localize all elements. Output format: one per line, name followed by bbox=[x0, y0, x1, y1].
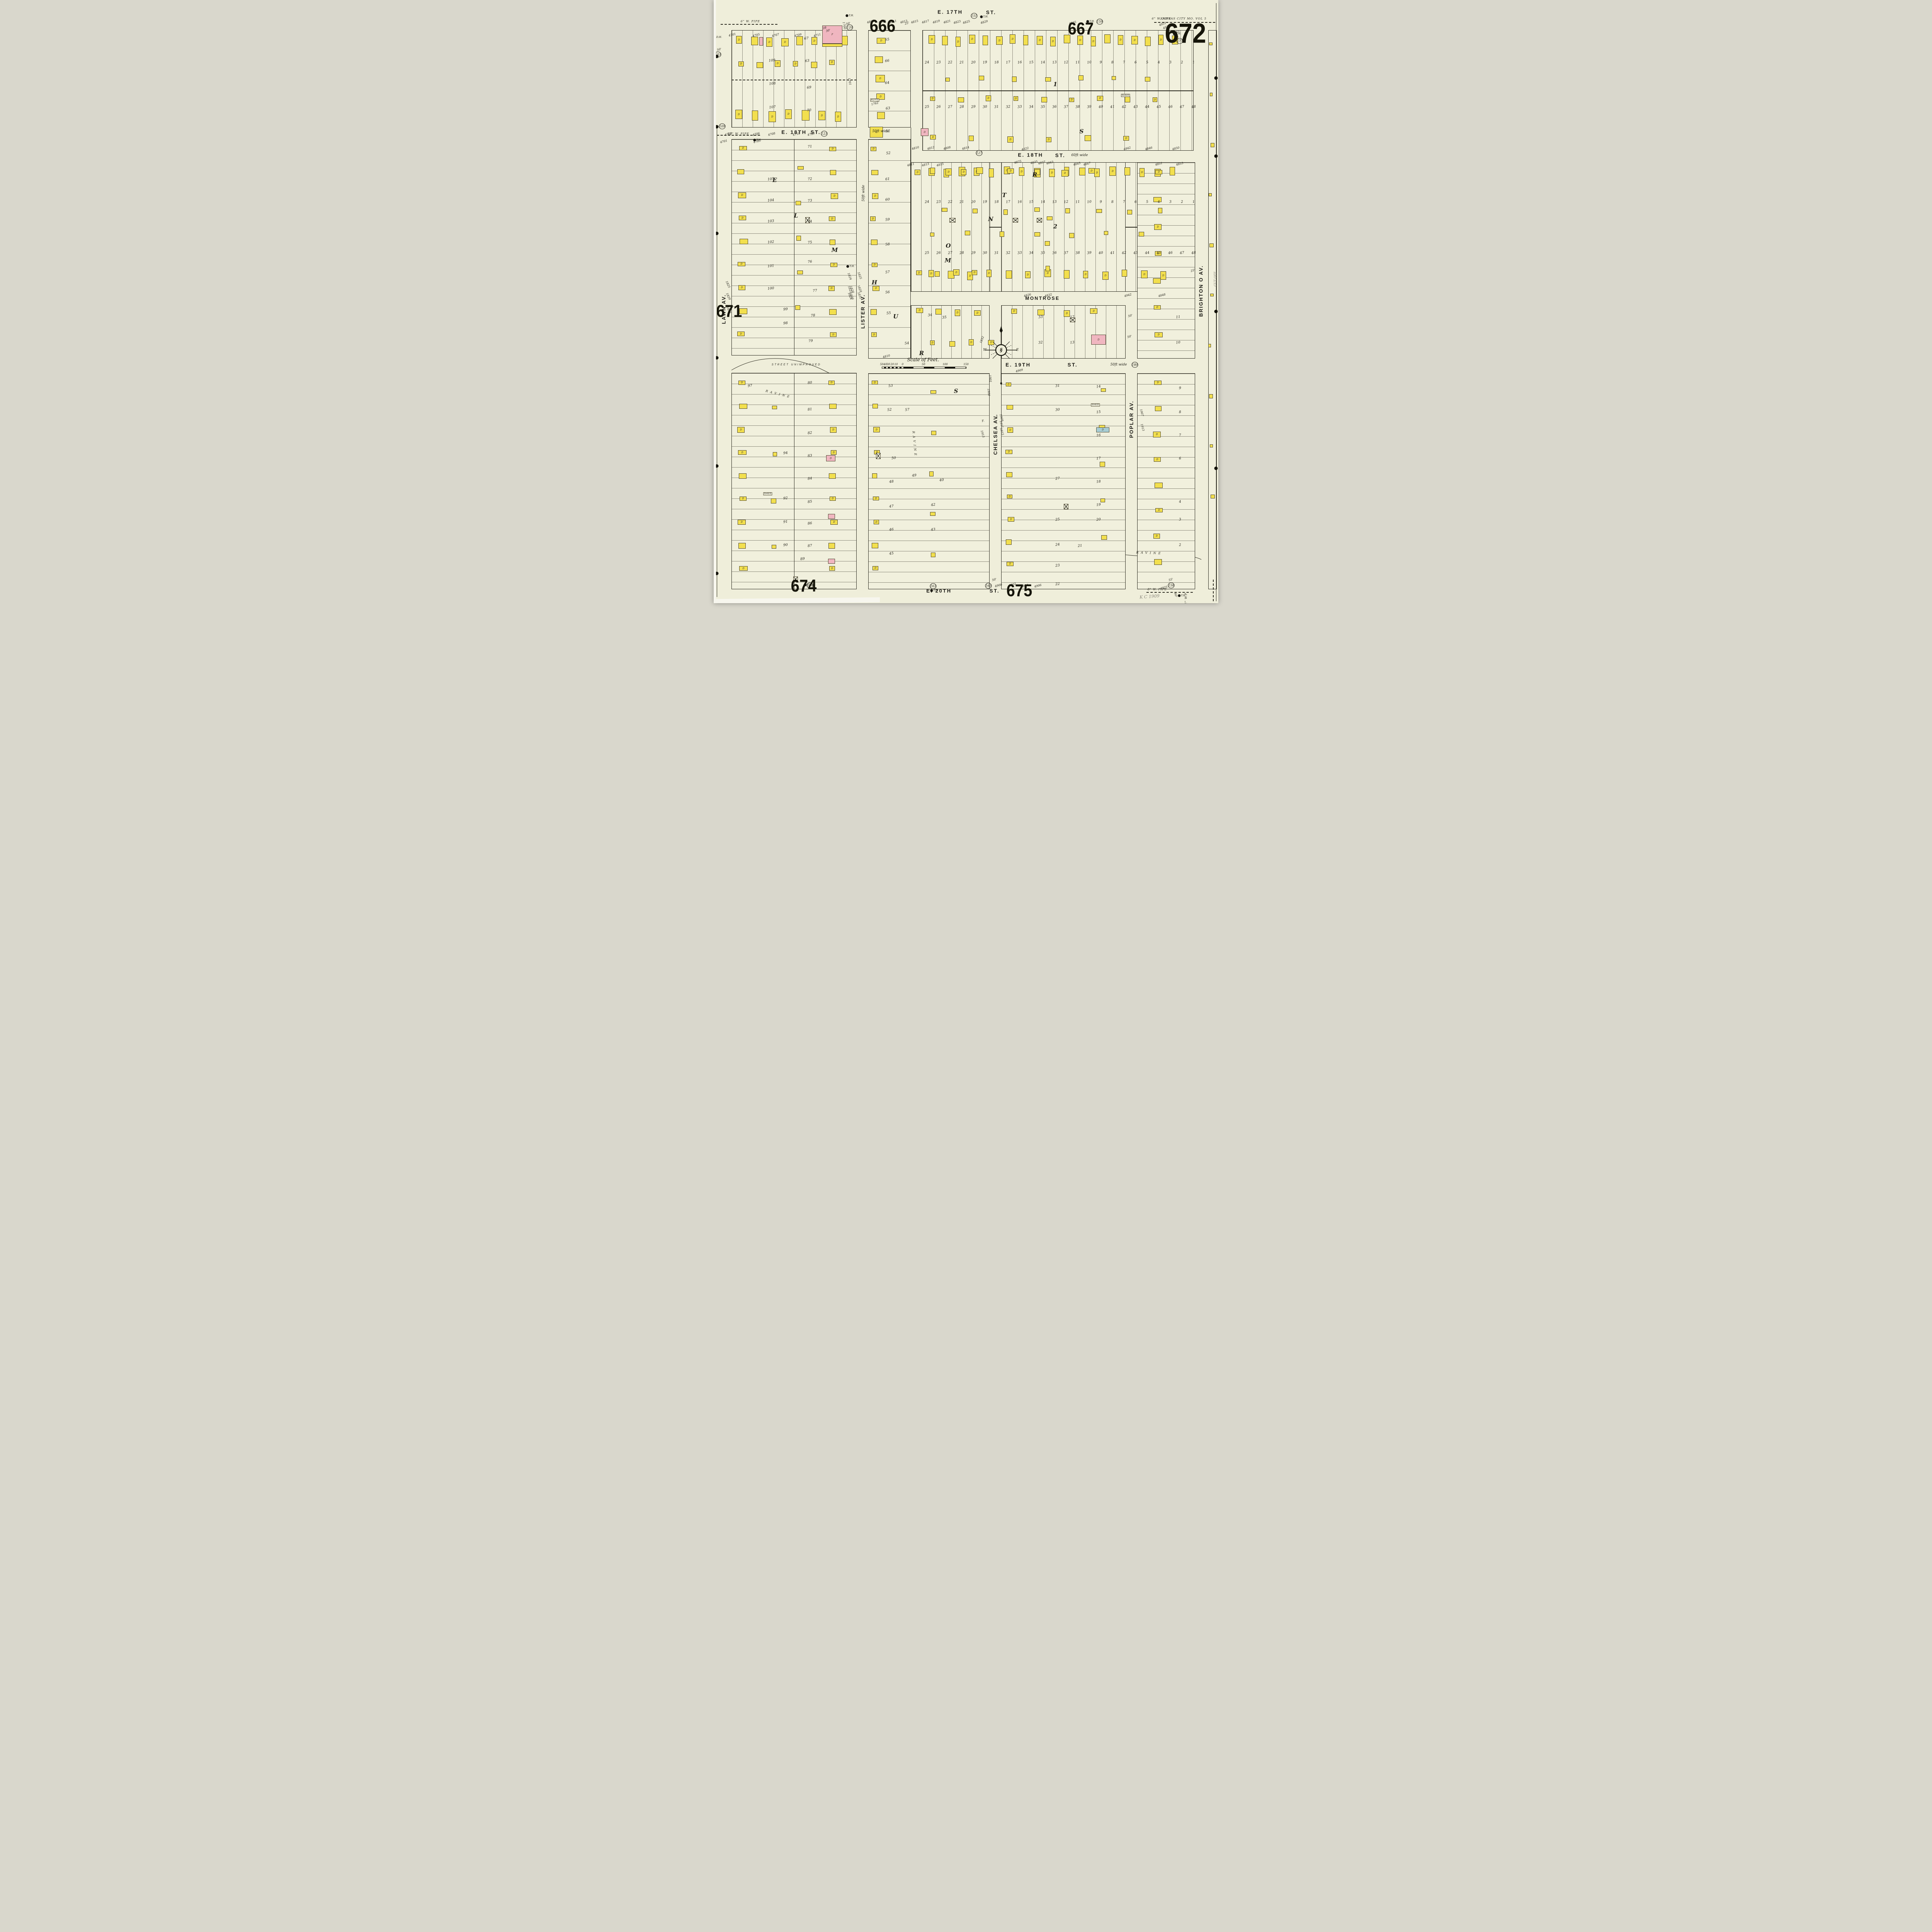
subdivision-letter: N bbox=[988, 216, 993, 223]
lot-number: 71 bbox=[808, 145, 812, 149]
frame-building bbox=[829, 404, 837, 409]
lot-number: 31 bbox=[994, 105, 999, 109]
reference-circle: 159 bbox=[1097, 19, 1103, 25]
frame-building bbox=[1211, 495, 1215, 498]
frame-building: D bbox=[829, 147, 836, 151]
lot-number: 9 bbox=[1179, 386, 1182, 391]
frame-building: D bbox=[1123, 136, 1129, 141]
lot-number: 36 bbox=[1052, 105, 1057, 109]
lot-number: 67 bbox=[804, 36, 809, 41]
street-label-lister-av: LISTER AV. bbox=[860, 294, 866, 329]
lot-number: 6 bbox=[1179, 457, 1182, 461]
street-label-poplar-av: POPLAR AV. bbox=[1129, 401, 1134, 438]
lot-number: 7 bbox=[1179, 434, 1182, 438]
pipe-note: 2" W.P. bbox=[1184, 592, 1188, 603]
frame-building bbox=[829, 473, 836, 479]
lot-number: 34 bbox=[1029, 105, 1034, 109]
frame-building bbox=[965, 231, 970, 235]
lot-number: 11 bbox=[1176, 315, 1180, 319]
binding-hole bbox=[1214, 155, 1218, 158]
subdivision-letter: S bbox=[1080, 128, 1084, 135]
house-number: 50' bbox=[716, 47, 721, 52]
th-marker: T.H. bbox=[845, 14, 854, 17]
frame-building bbox=[739, 404, 747, 409]
lot-number: 17 bbox=[1096, 456, 1101, 461]
street-label-chelsea-av: CHELSEA AV. bbox=[993, 414, 998, 455]
lot-number: 5 bbox=[1146, 200, 1149, 204]
frame-building bbox=[877, 112, 885, 119]
frame-building bbox=[1101, 388, 1106, 392]
frame-building bbox=[1045, 77, 1051, 82]
lot-number: 16 bbox=[1017, 60, 1022, 65]
lot-number: 94 bbox=[783, 451, 788, 455]
subdivision-letter: 1 bbox=[1053, 81, 1057, 88]
frame-building bbox=[983, 36, 988, 45]
lot-number: 26 bbox=[936, 251, 941, 255]
lot-number: 20 bbox=[1096, 517, 1101, 522]
house-number: 1825 bbox=[725, 280, 731, 288]
frame-building: D bbox=[1007, 136, 1014, 143]
lot-number: 32 bbox=[1038, 340, 1043, 345]
outbuilding-label: AUTO bbox=[870, 99, 879, 102]
frame-building bbox=[930, 512, 935, 516]
frame-building: D bbox=[818, 111, 825, 120]
frame-building bbox=[973, 209, 978, 213]
street-width-note: 50ft wide bbox=[862, 185, 866, 202]
frame-building: D bbox=[737, 332, 745, 336]
frame-building: D bbox=[916, 270, 922, 275]
lot-number: 4 bbox=[1158, 200, 1160, 204]
frame-building: D bbox=[828, 381, 835, 385]
lot-number: 45 bbox=[1156, 251, 1161, 255]
house-number: 4942 bbox=[1124, 293, 1132, 298]
frame-building: D bbox=[1064, 310, 1070, 317]
lot-number: 47 bbox=[889, 504, 894, 509]
lot-number: 8 bbox=[1179, 410, 1182, 415]
frame-building bbox=[1208, 344, 1211, 347]
vacant-structure bbox=[876, 453, 881, 459]
lot-number: 83 bbox=[808, 454, 812, 458]
adjacent-sheet-number-674: 674 bbox=[791, 577, 817, 596]
lot-number: 1 bbox=[1192, 200, 1195, 204]
frame-building bbox=[871, 170, 878, 175]
street-label-e18th-west: E. 18TH bbox=[781, 129, 806, 135]
frame-building: D bbox=[873, 427, 880, 432]
lot-number: 46 bbox=[1168, 251, 1173, 255]
lot-number: 74 bbox=[808, 219, 812, 224]
lot-number: 22 bbox=[948, 200, 952, 204]
lot-number: 69 bbox=[807, 85, 811, 90]
house-number: 4817 bbox=[922, 19, 930, 24]
lot-number: 21 bbox=[959, 60, 964, 65]
lot-number: 25 bbox=[1055, 517, 1060, 522]
frame-building: D bbox=[1019, 167, 1024, 176]
lot-number: 56 bbox=[885, 290, 890, 294]
lot-number: 8 bbox=[1111, 200, 1114, 204]
lot-number: 29 bbox=[971, 105, 976, 109]
frame-building: D bbox=[829, 216, 835, 221]
scale-tick-label: 150 bbox=[963, 363, 968, 366]
subdivision-letter: R bbox=[1032, 171, 1037, 178]
frame-building: D bbox=[1007, 168, 1014, 173]
reference-circle: 123 bbox=[821, 131, 828, 137]
lot-number: 28 bbox=[959, 251, 964, 255]
frame-building: D bbox=[872, 566, 878, 570]
frame-building bbox=[1145, 77, 1150, 82]
brick-building: D bbox=[826, 455, 835, 461]
lot-number: 84 bbox=[808, 476, 812, 481]
vacant-structure bbox=[1013, 218, 1018, 223]
lot-number: 91 bbox=[783, 520, 788, 524]
frame-building bbox=[935, 309, 942, 315]
frame-building bbox=[798, 166, 804, 170]
frame-building bbox=[757, 62, 763, 68]
lot-number: 27 bbox=[948, 251, 952, 255]
svg-text:§: § bbox=[1000, 347, 1003, 353]
lot-number: 3 bbox=[1169, 200, 1172, 204]
house-number: 4708 bbox=[768, 131, 776, 136]
house-number: 4701 bbox=[720, 139, 728, 144]
frame-building bbox=[739, 473, 747, 479]
scale-tick-label: 100 bbox=[942, 363, 947, 366]
lot-number: 32 bbox=[1006, 105, 1010, 109]
lot-number: 42 bbox=[1122, 105, 1126, 109]
frame-building: D bbox=[738, 520, 746, 525]
house-number: 60' bbox=[1173, 592, 1178, 598]
house-number: 4823 bbox=[953, 19, 961, 24]
frame-building: D bbox=[738, 285, 745, 290]
subdivision-letter: R bbox=[919, 350, 924, 357]
block-line bbox=[794, 139, 794, 355]
scale-tick-label: 30 bbox=[887, 363, 890, 366]
city-block bbox=[868, 30, 911, 128]
lot-number: 23 bbox=[1055, 563, 1060, 568]
frame-building bbox=[1155, 483, 1163, 488]
margin-cutoff-note: CUT OFF bbox=[1214, 272, 1217, 286]
frame-building bbox=[1125, 97, 1130, 102]
lot-number: 52 bbox=[886, 151, 891, 155]
street-label-lawn-av: LAWN AV. bbox=[721, 294, 727, 324]
frame-building bbox=[1154, 559, 1162, 565]
frame-building bbox=[1145, 37, 1151, 46]
street-label-brighton-av: BRIGHTON O AV. bbox=[1198, 265, 1204, 316]
lot-number: 13 bbox=[1070, 340, 1075, 345]
frame-building bbox=[1069, 233, 1074, 238]
lot-number: 63 bbox=[886, 106, 890, 111]
frame-building: D bbox=[739, 146, 747, 150]
lot-number: 105 bbox=[767, 177, 774, 182]
frame-building: D bbox=[1153, 432, 1161, 437]
frame-building bbox=[1210, 294, 1214, 296]
lot-number: 6 bbox=[1134, 200, 1137, 204]
vacant-structure bbox=[949, 218, 956, 223]
lot-number: 18 bbox=[1096, 480, 1101, 484]
reference-circle: 180 bbox=[1132, 362, 1138, 368]
frame-building: D bbox=[831, 450, 837, 455]
frame-building bbox=[930, 390, 936, 394]
lot-number: 48 bbox=[889, 480, 894, 484]
frame-building: D bbox=[974, 310, 981, 316]
frame-building: D bbox=[1025, 271, 1031, 278]
frame-building bbox=[737, 169, 744, 174]
lot-number: 98 bbox=[783, 321, 788, 325]
th-marker: T.H. bbox=[753, 138, 761, 141]
frame-building: D bbox=[877, 38, 886, 44]
sheet-number: 672 bbox=[1165, 17, 1206, 49]
frame-building bbox=[811, 62, 817, 68]
frame-building: D bbox=[811, 37, 817, 45]
lot-number: 40 bbox=[1099, 251, 1103, 255]
street-label-e18th-east-st: ST. bbox=[1055, 153, 1065, 158]
lot-number: 24 bbox=[925, 200, 929, 204]
frame-building: D bbox=[930, 340, 935, 345]
lot-number: 23 bbox=[936, 200, 941, 204]
block-line bbox=[717, 128, 717, 597]
frame-building bbox=[969, 136, 974, 141]
lot-number: 2 bbox=[1181, 61, 1184, 65]
lot-number: 40 bbox=[939, 478, 944, 482]
frame-building bbox=[1100, 498, 1105, 502]
frame-building: D bbox=[871, 147, 876, 151]
scale-tick-label: 50 bbox=[880, 363, 884, 366]
th-marker: T.H. bbox=[846, 265, 854, 268]
frame-building: D bbox=[1010, 34, 1015, 44]
map-canvas: DDDDDDDDDDDDDDDDDDDDDDDDDDDDDDDDDDDDDDDD… bbox=[714, 0, 1218, 603]
lot-number: 46 bbox=[1168, 105, 1173, 109]
lot-number: 19 bbox=[1096, 503, 1101, 507]
frame-building bbox=[930, 168, 935, 174]
frame-building: D bbox=[793, 61, 798, 66]
lot-number: 7 bbox=[1123, 200, 1126, 204]
brick-building: D bbox=[921, 128, 929, 136]
frame-building bbox=[1211, 143, 1214, 147]
lot-number: 38 bbox=[1075, 251, 1080, 255]
frame-building: D bbox=[738, 450, 747, 455]
frame-building bbox=[1007, 405, 1013, 410]
frame-building: D bbox=[738, 381, 745, 385]
lot-number: 20 bbox=[971, 200, 976, 204]
frame-building bbox=[946, 78, 950, 82]
frame-building bbox=[1006, 539, 1012, 545]
lot-number: 34 bbox=[1029, 251, 1034, 255]
frame-building: D bbox=[830, 497, 836, 501]
frame-building bbox=[1000, 231, 1004, 237]
frame-building bbox=[1209, 193, 1212, 196]
frame-building bbox=[949, 341, 955, 347]
reference-circle: 120 bbox=[847, 25, 853, 31]
street-label-e20th-st: ST. bbox=[990, 588, 1000, 594]
frame-building bbox=[871, 309, 877, 315]
scale-tick-label: 0 bbox=[902, 363, 903, 366]
frame-building: D bbox=[872, 381, 878, 384]
frame-building: D bbox=[870, 216, 876, 221]
lot-number: 12 bbox=[1064, 60, 1068, 65]
sanborn-map-sheet: DDDDDDDDDDDDDDDDDDDDDDDDDDDDDDDDDDDDDDDD… bbox=[714, 0, 1218, 603]
frame-building bbox=[1023, 35, 1028, 45]
lot-number: 2 bbox=[1179, 543, 1182, 548]
frame-building: D bbox=[969, 35, 975, 44]
frame-building: D bbox=[1153, 534, 1160, 539]
lot-number: 107 bbox=[769, 105, 776, 110]
lot-number: 60 bbox=[885, 197, 890, 202]
lot-number: 15 bbox=[1096, 410, 1101, 414]
frame-building bbox=[752, 111, 758, 121]
lot-number: 99 bbox=[783, 307, 788, 311]
lot-number: 33 bbox=[1017, 105, 1022, 109]
frame-building: D bbox=[1154, 381, 1162, 385]
house-number: 4815 bbox=[911, 19, 919, 24]
lot-number: 90 bbox=[783, 543, 788, 547]
frame-building: D bbox=[1007, 427, 1013, 433]
lot-number: 43 bbox=[1133, 251, 1138, 255]
reference-circle: 158 bbox=[1168, 583, 1175, 588]
special-building: D bbox=[1096, 427, 1109, 432]
pipe-dash-line bbox=[1213, 580, 1214, 601]
frame-building: D bbox=[876, 75, 885, 82]
frame-building: D bbox=[766, 37, 772, 47]
frame-building bbox=[930, 233, 934, 236]
frame-building bbox=[1096, 209, 1102, 213]
lot-number: 17 bbox=[1006, 200, 1010, 204]
house-number: 4829 bbox=[980, 19, 988, 24]
lot-number: 2 bbox=[1181, 200, 1184, 204]
torn-paper-edge-left bbox=[714, 0, 716, 603]
lot-number: 13 bbox=[1052, 60, 1057, 65]
lot-number: 65 bbox=[885, 37, 889, 42]
lot-number: 97 bbox=[748, 384, 752, 388]
frame-building bbox=[958, 97, 964, 102]
lot-number: 41 bbox=[1110, 105, 1115, 109]
adjacent-sheet-number-675: 675 bbox=[1007, 581, 1032, 600]
frame-building: D bbox=[1154, 224, 1162, 230]
lot-number: 29 bbox=[971, 251, 976, 255]
lot-number: 39 bbox=[1087, 251, 1092, 255]
frame-building bbox=[979, 76, 984, 80]
frame-building bbox=[1012, 77, 1017, 82]
lot-number: 35 bbox=[1041, 251, 1045, 255]
lot-number: 33 bbox=[1038, 315, 1043, 319]
lot-number: 57 bbox=[905, 408, 910, 412]
lot-number: 18 bbox=[994, 200, 999, 204]
lot-number: 14 bbox=[1041, 200, 1045, 204]
lot-number: 103 bbox=[767, 219, 774, 224]
frame-building bbox=[1006, 270, 1012, 279]
lot-number: 12 bbox=[1064, 200, 1068, 204]
lot-number: 6 bbox=[1134, 61, 1137, 65]
frame-building: D bbox=[1160, 271, 1166, 280]
lot-number: 27 bbox=[1055, 476, 1060, 481]
frame-building: D bbox=[1011, 309, 1017, 314]
frame-building bbox=[796, 236, 801, 241]
lot-number: 85 bbox=[808, 500, 812, 504]
street-label-e17th: E. 17TH bbox=[937, 9, 963, 15]
lot-number: 49 bbox=[912, 473, 917, 478]
subdivision-letter: H bbox=[872, 279, 877, 286]
subdivision-letter: T bbox=[1002, 192, 1006, 199]
lot-number: 15 bbox=[1029, 200, 1034, 204]
subdivision-letter: M bbox=[832, 247, 838, 253]
city-block bbox=[868, 373, 990, 589]
frame-building: D bbox=[986, 95, 991, 101]
volume-note: KANSAS CITY MO. VOL 5 bbox=[1160, 17, 1206, 20]
lot-number: 55 bbox=[886, 311, 891, 315]
torn-paper-edge-bottom bbox=[714, 597, 880, 603]
lot-number: 108 bbox=[769, 82, 776, 86]
lot-number: 57 bbox=[885, 270, 890, 274]
frame-building: D bbox=[930, 97, 935, 101]
lot-number: 21 bbox=[1078, 544, 1082, 548]
frame-building bbox=[1158, 208, 1162, 213]
lot-number: 109 bbox=[769, 58, 776, 63]
th-marker: T.H. bbox=[980, 15, 988, 18]
lot-number: 35 bbox=[942, 315, 947, 320]
lot-number: 11 bbox=[1075, 200, 1080, 204]
lot-number: 30 bbox=[1055, 408, 1060, 412]
frame-building bbox=[1170, 167, 1175, 175]
lot-number: 30 bbox=[983, 251, 987, 255]
frame-building bbox=[1064, 270, 1070, 279]
frame-building bbox=[796, 201, 801, 205]
lot-number: 45 bbox=[1156, 105, 1161, 109]
lot-number: 8 bbox=[1111, 61, 1114, 65]
lot-number: 10 bbox=[1176, 340, 1180, 345]
frame-building bbox=[1124, 167, 1130, 175]
lot-number: 20 bbox=[971, 60, 976, 65]
reference-circle: 127 bbox=[976, 150, 983, 156]
frame-building bbox=[1065, 208, 1070, 213]
lot-number: 4 bbox=[1158, 61, 1160, 65]
lot-number: 22 bbox=[1055, 582, 1060, 586]
frame-building: D bbox=[986, 270, 992, 277]
frame-building: D bbox=[831, 193, 838, 199]
frame-building bbox=[1034, 207, 1040, 212]
frame-building: D bbox=[1102, 272, 1109, 280]
block-line bbox=[1216, 3, 1216, 601]
frame-building bbox=[1085, 135, 1091, 141]
frame-building: D bbox=[916, 308, 923, 313]
subdivision-letter: S bbox=[954, 388, 958, 395]
frame-building: D bbox=[1090, 308, 1097, 314]
house-number: 50' bbox=[992, 577, 997, 582]
frame-building: D bbox=[961, 169, 966, 175]
lot-number: 13 bbox=[1052, 200, 1057, 204]
frame-building bbox=[822, 44, 842, 47]
frame-building: D bbox=[1007, 562, 1014, 566]
brick-building bbox=[828, 514, 835, 519]
lot-number: 61 bbox=[885, 177, 890, 181]
frame-building: D bbox=[872, 263, 878, 267]
binding-hole bbox=[1214, 77, 1218, 80]
frame-building bbox=[942, 36, 948, 45]
frame-building: D bbox=[830, 332, 837, 337]
lot-number: 73 bbox=[808, 199, 812, 203]
reference-circle: 109 bbox=[719, 124, 726, 129]
lot-number: 12 bbox=[1070, 315, 1075, 319]
street-label-e20th: E. 20TH bbox=[926, 588, 951, 594]
lot-number: 1 bbox=[1192, 61, 1195, 65]
lot-number: 24 bbox=[1055, 543, 1060, 547]
lot-number: 22 bbox=[948, 60, 952, 65]
frame-building: D bbox=[1158, 35, 1163, 45]
frame-building: D bbox=[1049, 169, 1055, 177]
frame-building bbox=[1210, 93, 1213, 96]
frame-building bbox=[1101, 535, 1107, 540]
frame-building: D bbox=[769, 111, 776, 122]
lot-number: 37 bbox=[1064, 105, 1068, 109]
frame-building bbox=[872, 404, 878, 408]
house-number: 4810 bbox=[912, 145, 920, 150]
frame-building bbox=[1127, 210, 1132, 214]
